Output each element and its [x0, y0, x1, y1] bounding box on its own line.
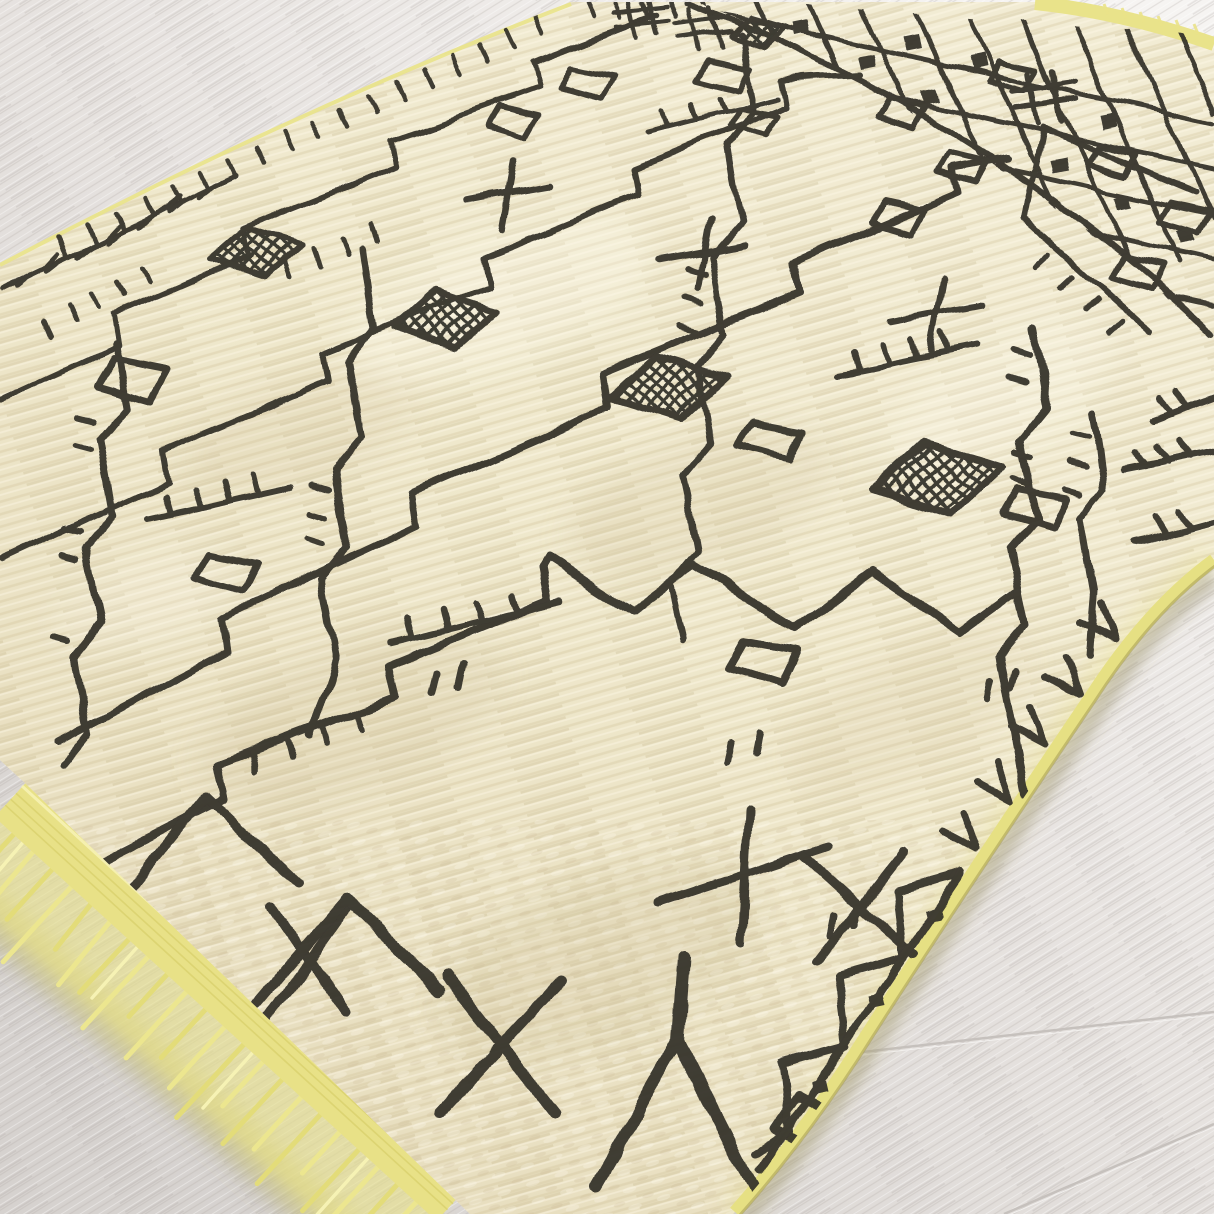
photo-canvas	[0, 0, 1214, 1214]
rug-photo	[0, 0, 1214, 1214]
